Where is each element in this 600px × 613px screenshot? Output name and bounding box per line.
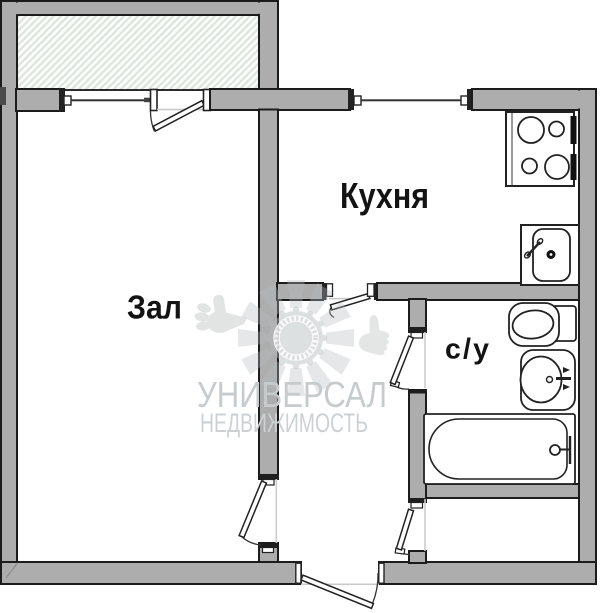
svg-text:Кухня: Кухня [340, 175, 429, 216]
svg-text:с/у: с/у [445, 334, 491, 366]
svg-text:Зал: Зал [127, 289, 182, 326]
svg-text:НЕДВИЖИМОСТЬ: НЕДВИЖИМОСТЬ [200, 408, 368, 438]
